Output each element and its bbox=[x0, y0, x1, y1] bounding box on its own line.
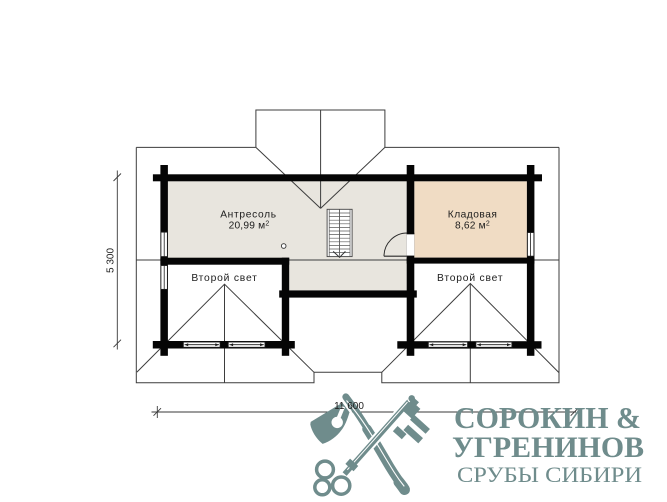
svg-text:УГРЕНИНОВ: УГРЕНИНОВ bbox=[452, 431, 644, 464]
svg-text:Второй свет: Второй свет bbox=[191, 273, 257, 284]
svg-text:СОРОКИН &: СОРОКИН & bbox=[454, 400, 641, 435]
svg-text:11 600: 11 600 bbox=[334, 401, 364, 412]
svg-text:5 300: 5 300 bbox=[106, 248, 117, 273]
svg-text:Второй свет: Второй свет bbox=[437, 273, 503, 284]
svg-text:20,99 м2: 20,99 м2 bbox=[229, 220, 270, 231]
svg-text:Кладовая: Кладовая bbox=[448, 210, 498, 221]
svg-text:СРУБЫ СИБИРИ: СРУБЫ СИБИРИ bbox=[457, 462, 642, 487]
svg-text:8,62 м2: 8,62 м2 bbox=[455, 220, 490, 231]
svg-text:Антресоль: Антресоль bbox=[220, 210, 277, 221]
